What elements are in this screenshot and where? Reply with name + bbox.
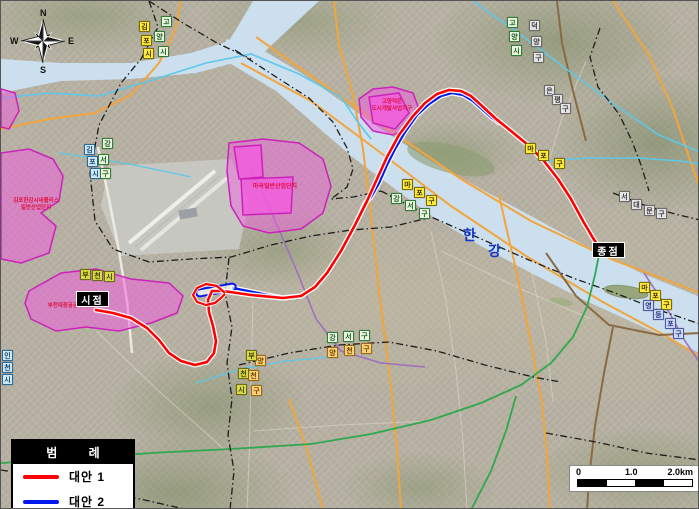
zone-west-small [1, 89, 19, 129]
district-label-seodaemun-gu: 구 [656, 208, 667, 219]
district-label-gangseo-gu-1: 강 [391, 193, 402, 204]
district-label-goyang-si-1: 시 [158, 46, 169, 57]
district-label-seodaemun-gu: 대 [631, 199, 642, 210]
district-label-gangseo-gu-1: 구 [419, 208, 430, 219]
district-label-mapo-gu-2: 구 [554, 158, 565, 169]
district-label-goyang-si-1: 양 [154, 31, 165, 42]
district-label-gangseo-gu-3: 서 [98, 154, 109, 165]
district-label-gimpo-si-1: 김 [139, 21, 150, 32]
district-label-yangcheon-gu-1: 천 [344, 345, 355, 356]
district-label-goyang-si-2: 양 [509, 31, 520, 42]
district-label-bucheon-si-2: 시 [236, 384, 247, 395]
district-label-yeongdeungpo-gu: 구 [673, 328, 684, 339]
legend-item-alt1: 대안 1 [13, 464, 133, 489]
legend-label-alt2: 대안 2 [69, 493, 105, 509]
end-marker: 종점 [593, 243, 624, 257]
legend-label-alt1: 대안 1 [69, 468, 105, 485]
scale-tick-0: 0 [576, 467, 581, 477]
compass-n: N [40, 8, 47, 18]
district-label-yangcheon-gu-2: 구 [251, 385, 262, 396]
compass-e: E [68, 36, 74, 46]
district-label-bucheon-si-1: 천 [92, 270, 103, 281]
legend: 범 례 대안 1 대안 2 [11, 439, 135, 509]
district-label-mapo-gu-3: 마 [639, 282, 650, 293]
district-label-mapo-gu-2: 마 [525, 143, 536, 154]
district-label-seodaemun-gu: 서 [619, 191, 630, 202]
legend-item-alt2: 대안 2 [13, 489, 133, 509]
district-label-incheon-si: 인 [2, 350, 13, 361]
district-label-gangseo-gu-3: 구 [100, 168, 111, 179]
district-label-gimpo-si-2: 포 [87, 156, 98, 167]
district-label-bucheon-si-2: 천 [238, 368, 249, 379]
district-label-goyang-si-2: 시 [511, 45, 522, 56]
district-label-deogyang-gu: 덕 [529, 20, 540, 31]
zone-label-magok: 마곡일반산업단지 [249, 184, 301, 191]
district-label-incheon-si: 천 [2, 362, 13, 373]
district-label-yangcheon-gu-1: 구 [361, 343, 372, 354]
district-label-yangcheon-gu-1: 양 [327, 347, 338, 358]
district-label-deogyang-gu: 양 [531, 36, 542, 47]
compass-w: W [10, 36, 19, 46]
district-label-bucheon-si-1: 시 [104, 271, 115, 282]
district-label-gimpo-si-1: 포 [141, 35, 152, 46]
district-label-gangseo-gu-2: 구 [359, 330, 370, 341]
zone-label-west: 김포한강시네폴리스일반산업단지 [7, 198, 65, 212]
district-label-eunpyeong-gu: 구 [560, 103, 571, 114]
river-label-gang: 강 [488, 241, 501, 261]
district-label-incheon-si: 시 [2, 374, 13, 385]
district-label-seodaemun-gu: 문 [644, 205, 655, 216]
scale-tick-2: 2.0km [667, 467, 693, 477]
legend-swatch-alt1 [23, 474, 59, 480]
district-label-mapo-gu-1: 포 [414, 187, 425, 198]
district-label-bucheon-si-2: 부 [246, 350, 257, 361]
district-label-goyang-si-1: 고 [161, 16, 172, 27]
start-marker: 시점 [77, 292, 108, 306]
district-label-gimpo-si-1: 시 [143, 48, 154, 59]
district-label-gangseo-gu-2: 서 [343, 331, 354, 342]
scale-bar-segments [577, 479, 693, 487]
route-alternatives-map: N E S W 고양시김포시고양시덕양구은평구서대문구마포구마포구마포구영등포구… [0, 0, 699, 509]
district-label-gimpo-si-2: 김 [84, 144, 95, 155]
district-label-deogyang-gu: 구 [533, 52, 544, 63]
legend-title: 범 례 [13, 441, 133, 464]
compass-s: S [40, 65, 46, 75]
zone-label-deogeun: 고양덕은도시개발사업지구 [369, 99, 415, 113]
legend-swatch-alt2 [23, 499, 59, 505]
district-label-gangseo-gu-2: 강 [327, 332, 338, 343]
district-label-mapo-gu-1: 구 [426, 195, 437, 206]
district-label-yangcheon-gu-2: 천 [248, 370, 259, 381]
district-label-yeongdeungpo-gu: 등 [653, 309, 664, 320]
district-label-bucheon-si-1: 부 [80, 269, 91, 280]
scale-bar: 0 1.0 2.0km [569, 465, 699, 492]
scale-tick-1: 1.0 [625, 467, 638, 477]
district-label-goyang-si-2: 고 [507, 17, 518, 28]
district-label-mapo-gu-1: 마 [402, 179, 413, 190]
district-label-gangseo-gu-1: 서 [405, 200, 416, 211]
district-label-gangseo-gu-3: 강 [102, 138, 113, 149]
district-label-mapo-gu-2: 포 [538, 150, 549, 161]
river-label-han: 한 [463, 225, 476, 245]
